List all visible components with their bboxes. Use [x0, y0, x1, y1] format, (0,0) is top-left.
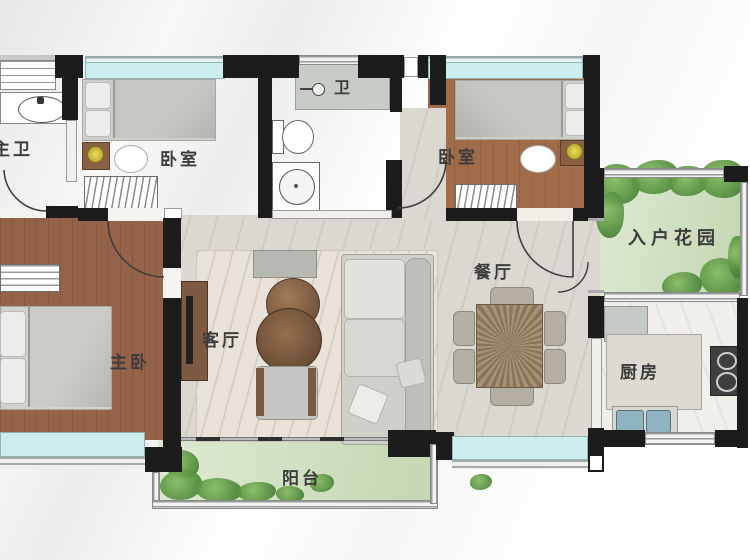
wall [388, 430, 436, 457]
stove-burner-icon [716, 372, 738, 392]
wardrobe [455, 184, 517, 209]
floor-plan: 主卫 卧室 卫 卧室 入户花园 客厅 餐厅 厨房 主卧 阳台 [0, 0, 750, 560]
bed-blanket [28, 307, 111, 407]
duct [404, 57, 418, 77]
kitchen-sink-basin [646, 410, 671, 433]
dining-chair [544, 311, 566, 346]
wall [715, 430, 748, 447]
wall [66, 120, 77, 182]
door-jamb [590, 456, 602, 470]
sliding-door-track [196, 437, 376, 441]
garden-rail [740, 182, 748, 296]
dining-chair [544, 349, 566, 384]
wall [591, 338, 602, 432]
bed-blanket [456, 81, 563, 137]
threshold [588, 218, 604, 221]
armchair-arm [308, 368, 316, 416]
sideboard [253, 250, 317, 278]
wall [390, 55, 402, 112]
washing-machine-dot [294, 184, 298, 188]
label-bedroom-2: 卧室 [438, 143, 478, 168]
bed-pillow [85, 82, 111, 109]
window-sill [0, 457, 148, 469]
wall [737, 298, 748, 448]
coffee-table [256, 308, 322, 372]
shower-arm-icon [300, 88, 313, 90]
dining-table [476, 304, 543, 388]
door-opening [0, 208, 46, 218]
wall [163, 298, 181, 450]
bay-window [0, 432, 145, 457]
sofa-cushion [344, 259, 405, 319]
shower-head-icon [312, 83, 325, 96]
label-master-bedroom: 主卧 [110, 348, 150, 373]
lamp-icon [87, 146, 104, 163]
stove-burner-icon [717, 352, 737, 370]
window [428, 62, 583, 79]
door-opening [108, 208, 164, 221]
wall [588, 296, 604, 338]
wall [163, 218, 181, 268]
wall [0, 55, 56, 60]
label-living-room: 客厅 [202, 326, 242, 351]
garden-divider [604, 292, 740, 302]
window [299, 55, 359, 65]
pouf [114, 145, 148, 173]
bed-pillow [85, 110, 111, 137]
towel-shelf [0, 60, 56, 90]
label-entry-garden: 入户花园 [628, 224, 720, 250]
wall [258, 55, 272, 218]
door-opening [517, 208, 573, 221]
wall [588, 168, 604, 218]
wall [724, 166, 748, 182]
plant [470, 474, 492, 490]
dresser [0, 264, 60, 292]
wall [145, 447, 182, 472]
bed-pillow [0, 311, 26, 357]
pouf [520, 145, 556, 173]
bed-pillow [0, 358, 26, 404]
balcony-rail [152, 500, 438, 509]
threshold [588, 290, 604, 293]
wardrobe [84, 176, 158, 210]
label-dining-room: 餐厅 [474, 258, 514, 283]
label-bathroom: 卫 [334, 74, 353, 98]
window-sill [452, 460, 588, 469]
plant [196, 478, 242, 502]
wall [62, 58, 78, 120]
bay-window [452, 436, 588, 460]
wall [430, 55, 446, 105]
window [85, 62, 225, 79]
label-bedroom-1: 卧室 [160, 145, 200, 170]
garden-window [604, 168, 724, 178]
label-balcony: 阳台 [282, 464, 322, 489]
tv [186, 296, 193, 364]
wall [272, 210, 392, 219]
label-kitchen: 厨房 [620, 358, 660, 383]
wall [600, 430, 645, 447]
bed-blanket [113, 80, 215, 138]
faucet-icon [37, 97, 44, 104]
dining-chair [453, 311, 475, 346]
sofa-back [405, 258, 431, 441]
toilet-bowl [282, 120, 314, 154]
label-master-bath: 主卫 [0, 135, 33, 160]
wall [446, 208, 517, 221]
lamp-icon [566, 143, 583, 160]
armchair-arm [256, 368, 264, 416]
dining-chair [490, 386, 534, 406]
dining-chair [453, 349, 475, 384]
wall [46, 206, 78, 218]
door-opening [163, 268, 181, 298]
wall [78, 208, 108, 221]
kitchen-window [645, 432, 715, 445]
